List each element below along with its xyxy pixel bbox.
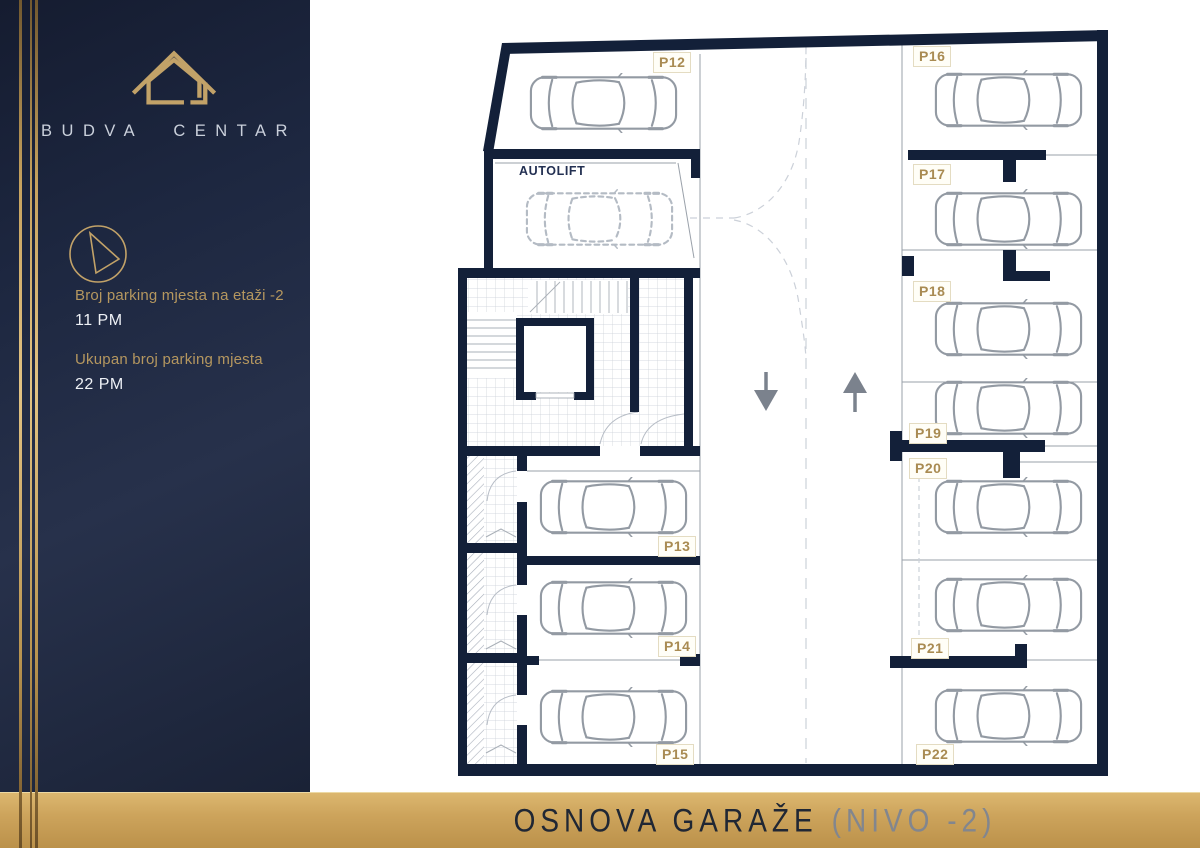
parking-spot-label-p14: P14 <box>658 636 696 657</box>
car-icon-p22 <box>936 686 1081 746</box>
car-icon-p12 <box>531 73 676 133</box>
plan-title-text: OSNOVA GARAŽE <box>514 802 818 838</box>
car-icon-autolift <box>527 189 672 249</box>
traffic-arrows <box>754 372 867 412</box>
stat-total-parking: Ukupan broj parking mjesta 22 PM <box>75 351 305 394</box>
stat-label-total-parking: Ukupan broj parking mjesta <box>75 351 305 368</box>
parking-stats: Broj parking mjesta na etaži -2 11 PM Uk… <box>75 287 305 415</box>
car-icon-p19 <box>936 378 1081 438</box>
car-icon-p21 <box>936 575 1081 635</box>
page: BUDVA CENTAR Broj parking mjesta na etaž… <box>0 0 1200 848</box>
brand-logo-house-icon <box>131 46 217 106</box>
parking-spot-label-p19: P19 <box>909 423 947 444</box>
up-arrow-icon <box>843 372 867 393</box>
car-icon-p20 <box>936 477 1081 537</box>
parking-spot-label-p21: P21 <box>911 638 949 659</box>
car-icon-p14 <box>541 578 686 638</box>
parking-spot-label-p18: P18 <box>913 281 951 302</box>
parking-spot-label-p16: P16 <box>913 46 951 67</box>
car-icon-p18 <box>936 299 1081 359</box>
stat-label-level-parking: Broj parking mjesta na etaži -2 <box>75 287 305 304</box>
car-icon-p13 <box>541 477 686 537</box>
autolift-label: AUTOLIFT <box>519 164 585 178</box>
gold-accent-line <box>30 0 32 848</box>
plan-title: OSNOVA GARAŽE(NIVO -2) <box>514 802 997 839</box>
floor-plan <box>440 20 1140 790</box>
footer-bar: OSNOVA GARAŽE(NIVO -2) <box>0 792 1200 848</box>
gold-accent-line <box>19 0 22 848</box>
parking-spot-label-p20: P20 <box>909 458 947 479</box>
parking-spot-label-p15: P15 <box>656 744 694 765</box>
stat-value-level-parking: 11 PM <box>75 312 305 330</box>
compass-icon <box>64 222 134 288</box>
stat-value-total-parking: 22 PM <box>75 376 305 394</box>
parking-spot-label-p17: P17 <box>913 164 951 185</box>
parking-spot-label-p12: P12 <box>653 52 691 73</box>
parking-spot-label-p22: P22 <box>916 744 954 765</box>
stat-level-parking: Broj parking mjesta na etaži -2 11 PM <box>75 287 305 330</box>
elevator <box>516 318 594 400</box>
car-icon-p17 <box>936 189 1081 249</box>
sidebar: BUDVA CENTAR Broj parking mjesta na etaž… <box>0 0 310 792</box>
plan-level-text: (NIVO -2) <box>832 802 997 838</box>
car-icon-p16 <box>936 70 1081 130</box>
parking-spot-label-p13: P13 <box>658 536 696 557</box>
car-icon-p15 <box>541 687 686 747</box>
down-arrow-icon <box>754 390 778 411</box>
brand-name: BUDVA CENTAR <box>38 122 300 141</box>
aisle-guidelines <box>690 38 919 763</box>
gold-accent-line <box>35 0 38 848</box>
